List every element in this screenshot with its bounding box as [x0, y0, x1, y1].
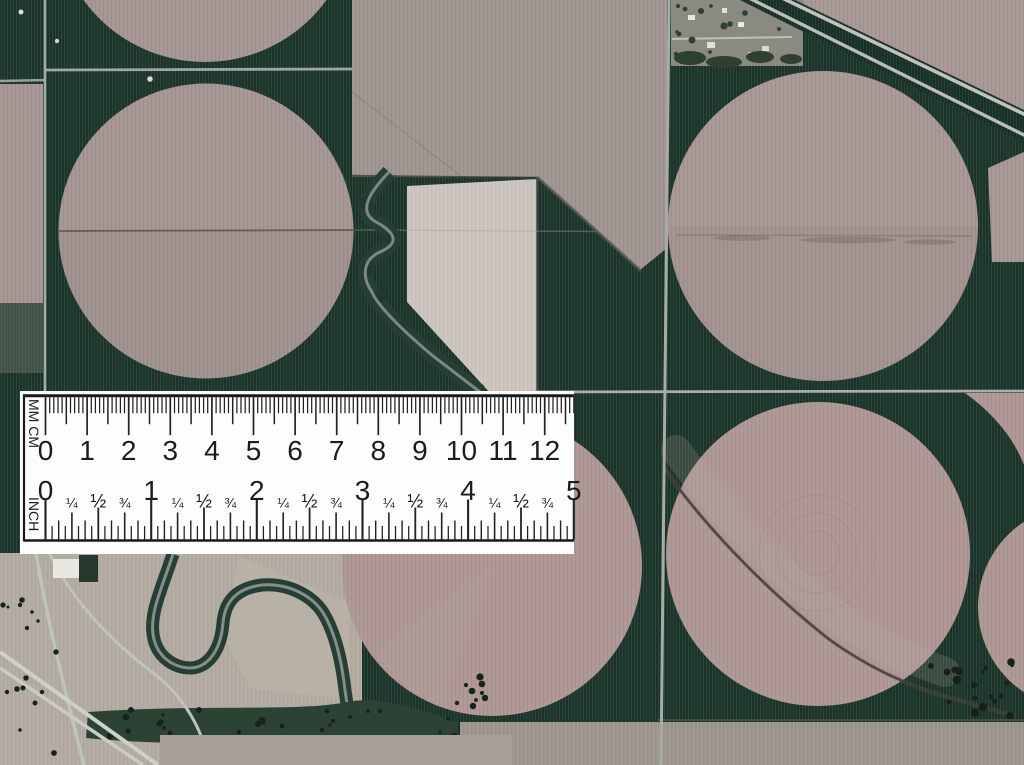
- svg-text:¾: ¾: [542, 495, 554, 511]
- svg-text:6: 6: [287, 435, 303, 466]
- svg-text:12: 12: [529, 435, 560, 466]
- svg-text:¼: ¼: [277, 495, 289, 511]
- svg-text:¾: ¾: [225, 495, 237, 511]
- svg-text:INCH: INCH: [26, 497, 42, 531]
- svg-text:¼: ¼: [489, 495, 501, 511]
- svg-text:9: 9: [412, 435, 428, 466]
- svg-text:MM CM: MM CM: [26, 399, 42, 448]
- svg-text:1: 1: [79, 435, 95, 466]
- svg-text:¾: ¾: [330, 495, 342, 511]
- svg-text:3: 3: [163, 435, 179, 466]
- svg-text:7: 7: [329, 435, 345, 466]
- svg-text:¼: ¼: [172, 495, 184, 511]
- svg-text:¾: ¾: [119, 495, 131, 511]
- svg-text:11: 11: [489, 435, 518, 466]
- svg-text:8: 8: [371, 435, 387, 466]
- svg-text:10: 10: [446, 435, 477, 466]
- svg-text:¼: ¼: [66, 495, 78, 511]
- svg-text:2: 2: [121, 435, 137, 466]
- svg-text:¾: ¾: [436, 495, 448, 511]
- svg-text:5: 5: [246, 435, 262, 466]
- svg-text:¼: ¼: [383, 495, 395, 511]
- svg-text:4: 4: [204, 435, 220, 466]
